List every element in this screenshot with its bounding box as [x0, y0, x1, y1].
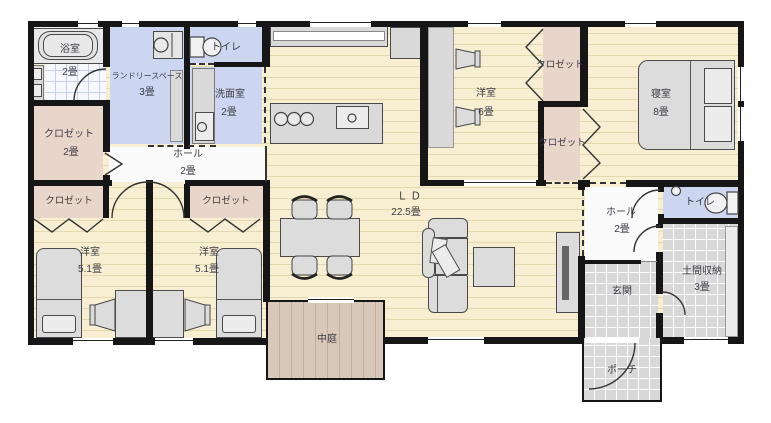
wall-doma-left-3	[656, 313, 663, 338]
window-top-bath	[78, 21, 98, 27]
wall-ld-genkan	[578, 256, 585, 338]
vanity-sink	[195, 112, 214, 141]
label-west3: 洋室	[476, 86, 496, 102]
bed-master-pillow-1	[704, 68, 732, 104]
window-top-west3	[468, 21, 501, 27]
wall-bottom-east-2	[728, 337, 744, 344]
sofa-seam	[437, 276, 438, 312]
bed-west1-pillow	[42, 315, 76, 333]
bed-master-fold	[690, 61, 691, 149]
wall-hall-bottom-1	[28, 180, 112, 186]
wall-ld-hall-stub	[578, 183, 585, 190]
label-west2: 洋室	[199, 245, 219, 261]
wall-hall-bottom-2	[185, 180, 270, 186]
label-bedroom-size: 8畳	[653, 105, 669, 121]
label-bathroom: 浴室	[60, 42, 80, 58]
opening-toilet-top	[190, 63, 214, 65]
bed-master-pillow-2	[704, 106, 732, 142]
wall-closet1-stub	[103, 184, 109, 218]
window-ld-courtyard	[308, 297, 354, 303]
island-sink-unit	[336, 106, 369, 129]
label-west1-size: 5.1畳	[78, 262, 102, 278]
label-bedroom: 寝室	[651, 87, 671, 103]
label-closet-main-size: 2畳	[63, 145, 79, 161]
genkan-step-line	[641, 261, 657, 262]
opening-washroom-kitchen	[264, 67, 266, 143]
wall-hall-ld-line	[265, 146, 267, 182]
wall-doma-left-1	[656, 224, 663, 228]
label-courtyard: 中庭	[317, 332, 337, 348]
label-west2-size: 5.1畳	[195, 262, 219, 278]
refrigerator	[390, 27, 421, 59]
label-hall-left: ホール	[173, 147, 203, 163]
washing-machine	[153, 31, 183, 59]
wall-closet-hall-1	[103, 100, 110, 152]
dining-table	[280, 218, 360, 257]
wall-washroom-kitchen	[262, 21, 270, 67]
wall-ld-left	[263, 183, 270, 302]
floor-plan: 浴室 2畳 ランドリースペース 3畳 トイレ 洗面室 2畳 クロゼット 2畳 ホ…	[0, 0, 771, 423]
wall-toilet2-left-1	[658, 187, 664, 192]
opening-ld-hall-right	[582, 190, 584, 256]
label-toilet-right: トイレ	[685, 195, 715, 211]
label-doma: 土間収納	[682, 264, 722, 280]
bed-west2-fold	[217, 299, 261, 300]
opening-bedroom-hall	[590, 182, 626, 184]
window-right-bedroom-1	[738, 67, 744, 101]
wall-laundry-washroom	[184, 27, 190, 149]
label-closet-west-1: クロゼット	[45, 193, 93, 208]
bed-west1-fold	[37, 299, 81, 300]
kitchen-back-counter-top	[273, 31, 385, 41]
wall-kitchen-west3	[420, 21, 428, 186]
label-closet-west3: クロゼット	[536, 57, 584, 72]
window-bottom-ld	[428, 337, 484, 344]
window-right-bedroom-2	[738, 107, 744, 141]
label-closet-bedroom: クロゼット	[538, 135, 586, 150]
floor-closet-main	[34, 106, 103, 181]
side-table	[473, 247, 515, 287]
wall-bottom-east-1	[660, 337, 686, 344]
wall-genkan-step	[585, 260, 641, 264]
label-west3-size: 6畳	[478, 105, 494, 121]
entrance-opening	[585, 337, 639, 343]
bed-west2-pillow	[222, 315, 256, 333]
label-hall-left-size: 2畳	[180, 164, 196, 180]
label-closet-west-2: クロゼット	[202, 193, 250, 208]
wall-toilet-washroom	[214, 62, 266, 67]
window-top-bedroom	[625, 21, 656, 27]
label-bathroom-size: 2畳	[62, 65, 78, 81]
wall-bedroom-bottom	[626, 180, 744, 187]
opening-closets-bottom	[546, 182, 578, 184]
label-laundry-size: 3畳	[139, 85, 155, 101]
wall-closets-divider	[538, 101, 586, 107]
wall-doma-left-2	[656, 252, 663, 294]
window-bottom-west1	[73, 338, 113, 345]
label-toilet-top: トイレ	[211, 40, 241, 56]
sofa-seat-bottom	[428, 275, 468, 313]
tv	[562, 246, 569, 300]
window-top-kitchen	[310, 20, 371, 27]
label-doma-size: 3畳	[694, 280, 710, 296]
label-washroom-size: 2畳	[221, 105, 237, 121]
label-closet-main: クロゼット	[44, 127, 94, 143]
doma-shelf	[725, 226, 738, 337]
label-hall-right: ホール	[606, 205, 636, 221]
window-top-toilet	[238, 21, 256, 27]
label-west1: 洋室	[80, 245, 100, 261]
desk-west1	[115, 290, 147, 338]
window-bottom-doma	[684, 337, 728, 344]
label-washroom: 洗面室	[215, 87, 245, 103]
label-laundry: ランドリースペース	[112, 71, 183, 84]
wall-west3-bottom-1	[420, 180, 464, 186]
label-hall-right-size: 2畳	[614, 222, 630, 238]
wall-bath-closet	[28, 100, 110, 106]
desk-west2	[152, 290, 184, 338]
window-west3-ld	[464, 180, 536, 186]
label-living-dining: Ｌ Ｄ	[397, 189, 421, 206]
label-porch: ポーチ	[607, 363, 637, 379]
desk-counter-west3	[428, 27, 454, 148]
wall-bath-laundry	[103, 27, 110, 67]
wall-toilet2-bottom	[658, 218, 744, 224]
label-living-dining-size: 22.5畳	[391, 205, 420, 221]
label-entrance: 玄関	[612, 284, 632, 300]
wall-closet2-stub	[184, 184, 190, 218]
wall-center-divider	[146, 180, 153, 340]
window-top-laundry	[122, 21, 139, 27]
window-bottom-west2	[155, 338, 193, 345]
